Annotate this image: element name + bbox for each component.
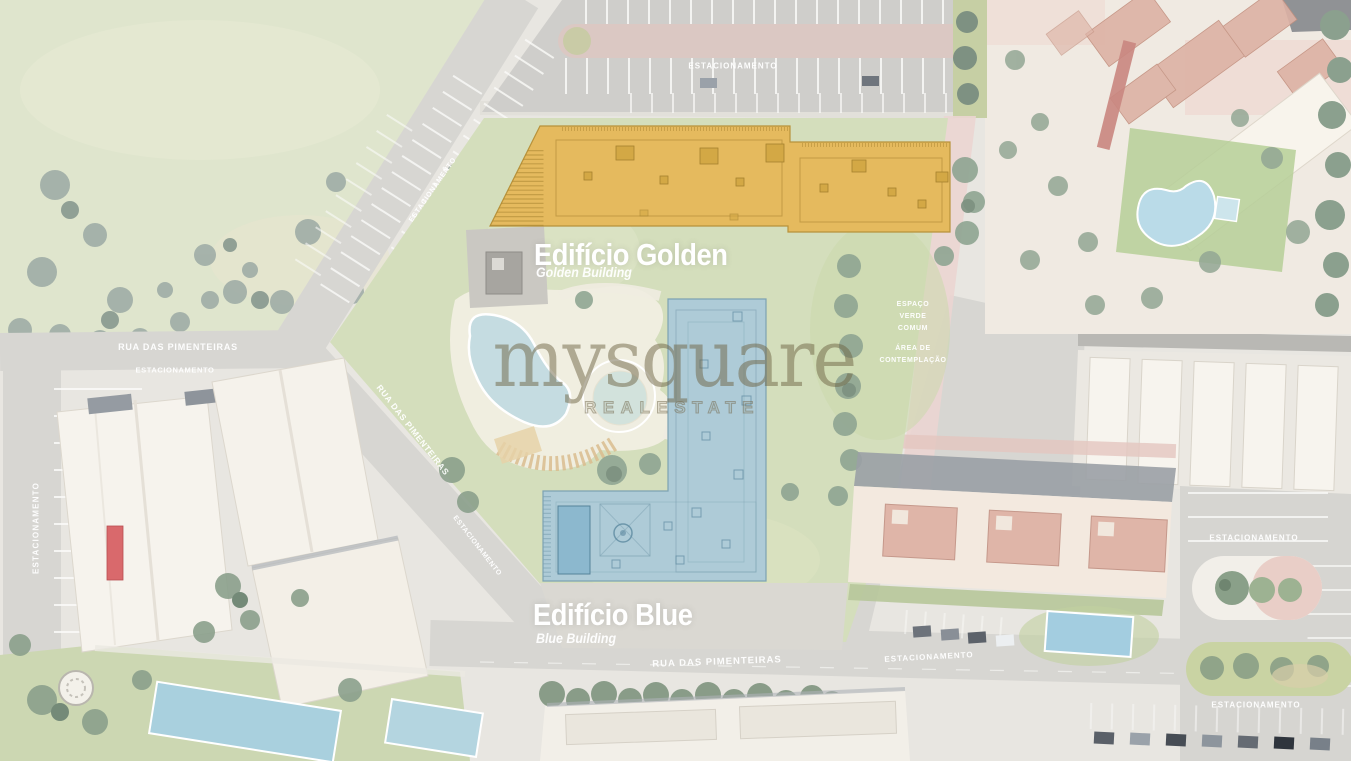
zone-label-green-space: ESPAÇO VERDE COMUM: [897, 299, 930, 335]
blue-building-title: Edifício Blue: [533, 597, 693, 633]
parking-label-left-vertical: ESTACIONAMENTO: [32, 482, 41, 574]
blue-building-pool: [558, 506, 590, 574]
mysquare-logo-brand: mysquare: [492, 312, 855, 405]
mysquare-logo-tagline: REALESTATE: [584, 398, 760, 418]
parking-label-right-lower: ESTACIONAMENTO: [1211, 701, 1300, 710]
zone-label-contemplation: ÁREA DE CONTEMPLAÇÃO: [879, 343, 946, 367]
resort-complex: [953, 0, 1351, 334]
street-label-rua-left: RUA DAS PIMENTEIRAS: [118, 342, 238, 352]
parking-label-right-upper: ESTACIONAMENTO: [1209, 534, 1298, 543]
block-pool: [1045, 611, 1134, 657]
parking-label-left: ESTACIONAMENTO: [136, 366, 215, 375]
blue-building-subtitle: Blue Building: [536, 631, 616, 646]
golden-building: [490, 126, 950, 232]
spiral-feature: [59, 671, 93, 705]
parking-label-top: ESTACIONAMENTO: [688, 62, 777, 71]
red-shaft: [107, 526, 123, 580]
site-plan-canvas: ESTACIONAMENTO ESTACIONAMENTO RUA DAS PI…: [0, 0, 1351, 761]
golden-building-subtitle: Golden Building: [536, 265, 632, 280]
